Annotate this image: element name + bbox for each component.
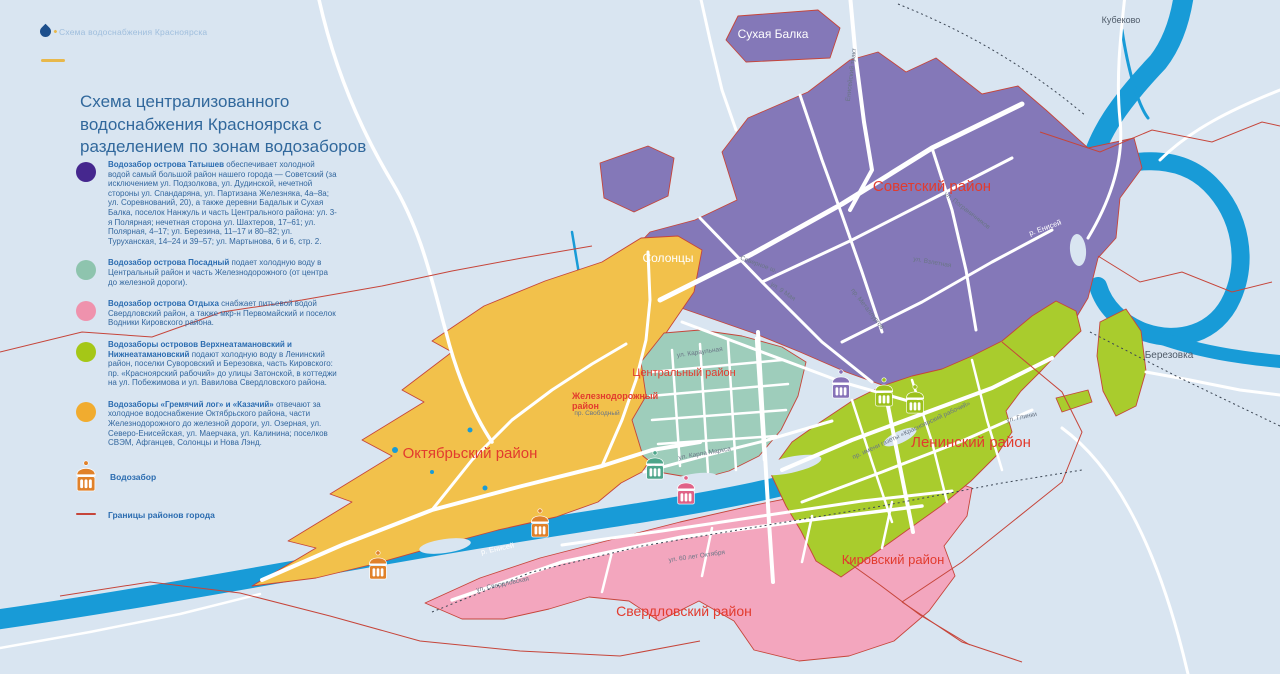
zone-color-dot xyxy=(76,162,96,182)
legend-item-water-intake: Водозабор xyxy=(76,460,338,493)
legend-body: обеспечивает холодной водой самый большо… xyxy=(108,160,337,246)
district-label: Центральный район xyxy=(632,367,736,379)
zone-color-dot xyxy=(76,260,96,280)
legend-tower-label: Водозабор xyxy=(110,472,156,482)
street-label: ул. Глинки xyxy=(1006,411,1038,424)
zone-soviet-northwest xyxy=(600,146,674,212)
legend-text: Водозаборы островов Верхнеатамановский и… xyxy=(108,340,338,388)
legend-lead: Водозабор острова Татышев xyxy=(108,160,224,169)
legend-item-gremyachiy: Водозаборы «Гремячий лог» и «Казачий» от… xyxy=(76,400,338,448)
legend-lead: Водозаборы «Гремячий лог» и «Казачий» xyxy=(108,400,274,409)
district-label: Кировский район xyxy=(842,552,945,567)
legend-item-posadny: Водозабор острова Посадный подает холодн… xyxy=(76,258,338,287)
legend-item-boundaries: Границы районов города xyxy=(76,507,338,520)
district-label: Свердловский район xyxy=(616,603,752,619)
district-label: Железнодорожный xyxy=(571,391,658,401)
zone-leninsky-islet xyxy=(1056,390,1092,412)
legend-text: Водозабор острова Посадный подает холодн… xyxy=(108,258,338,287)
district-label: Советский район xyxy=(873,178,991,195)
water-tower-icon xyxy=(832,370,850,398)
legend-text: Водозабор острова Отдыха снабжает питьев… xyxy=(108,299,338,328)
page-title: Схема централизованного водоснабжения Кр… xyxy=(80,91,410,158)
legend-lead: Водозабор острова Посадный xyxy=(108,258,229,267)
legend-boundary-label: Границы районов города xyxy=(108,510,215,520)
place-label: Сухая Балка xyxy=(738,27,809,41)
legend-item-otdykha: Водозабор острова Отдыха снабжает питьев… xyxy=(76,299,338,328)
zone-color-dot xyxy=(76,301,96,321)
place-label: Солонцы xyxy=(642,251,693,265)
boundary-line-sample xyxy=(76,513,96,515)
legend-text: Водозабор острова Татышев обеспечивает х… xyxy=(108,160,338,246)
zone-color-dot xyxy=(76,402,96,422)
place-label: Березовка xyxy=(1145,350,1194,361)
legend-lead: Водозабор острова Отдыха xyxy=(108,299,219,308)
logo: Схема водоснабжения Красноярска xyxy=(40,26,207,37)
logo-text: Схема водоснабжения Красноярска xyxy=(59,27,207,37)
legend-text: Водозаборы «Гремячий лог» и «Казачий» от… xyxy=(108,400,338,448)
district-label: Октябрьский район xyxy=(403,445,538,462)
legend-item-tatyshev: Водозабор острова Татышев обеспечивает х… xyxy=(76,160,338,246)
district-label: Ленинский район xyxy=(911,434,1031,451)
legend-item-atamanovsky: Водозаборы островов Верхнеатамановский и… xyxy=(76,340,338,388)
accent-dash xyxy=(41,59,65,62)
street-label: пр. Свободный xyxy=(574,409,620,417)
zone-color-dot xyxy=(76,342,96,362)
infographic-poster: Советский районОктябрьский районЛенински… xyxy=(0,0,1280,674)
place-label: Кубеково xyxy=(1102,15,1141,25)
water-drop-icon xyxy=(38,24,54,40)
legend: Водозабор острова Татышев обеспечивает х… xyxy=(76,160,338,534)
water-tower-icon xyxy=(74,460,98,493)
